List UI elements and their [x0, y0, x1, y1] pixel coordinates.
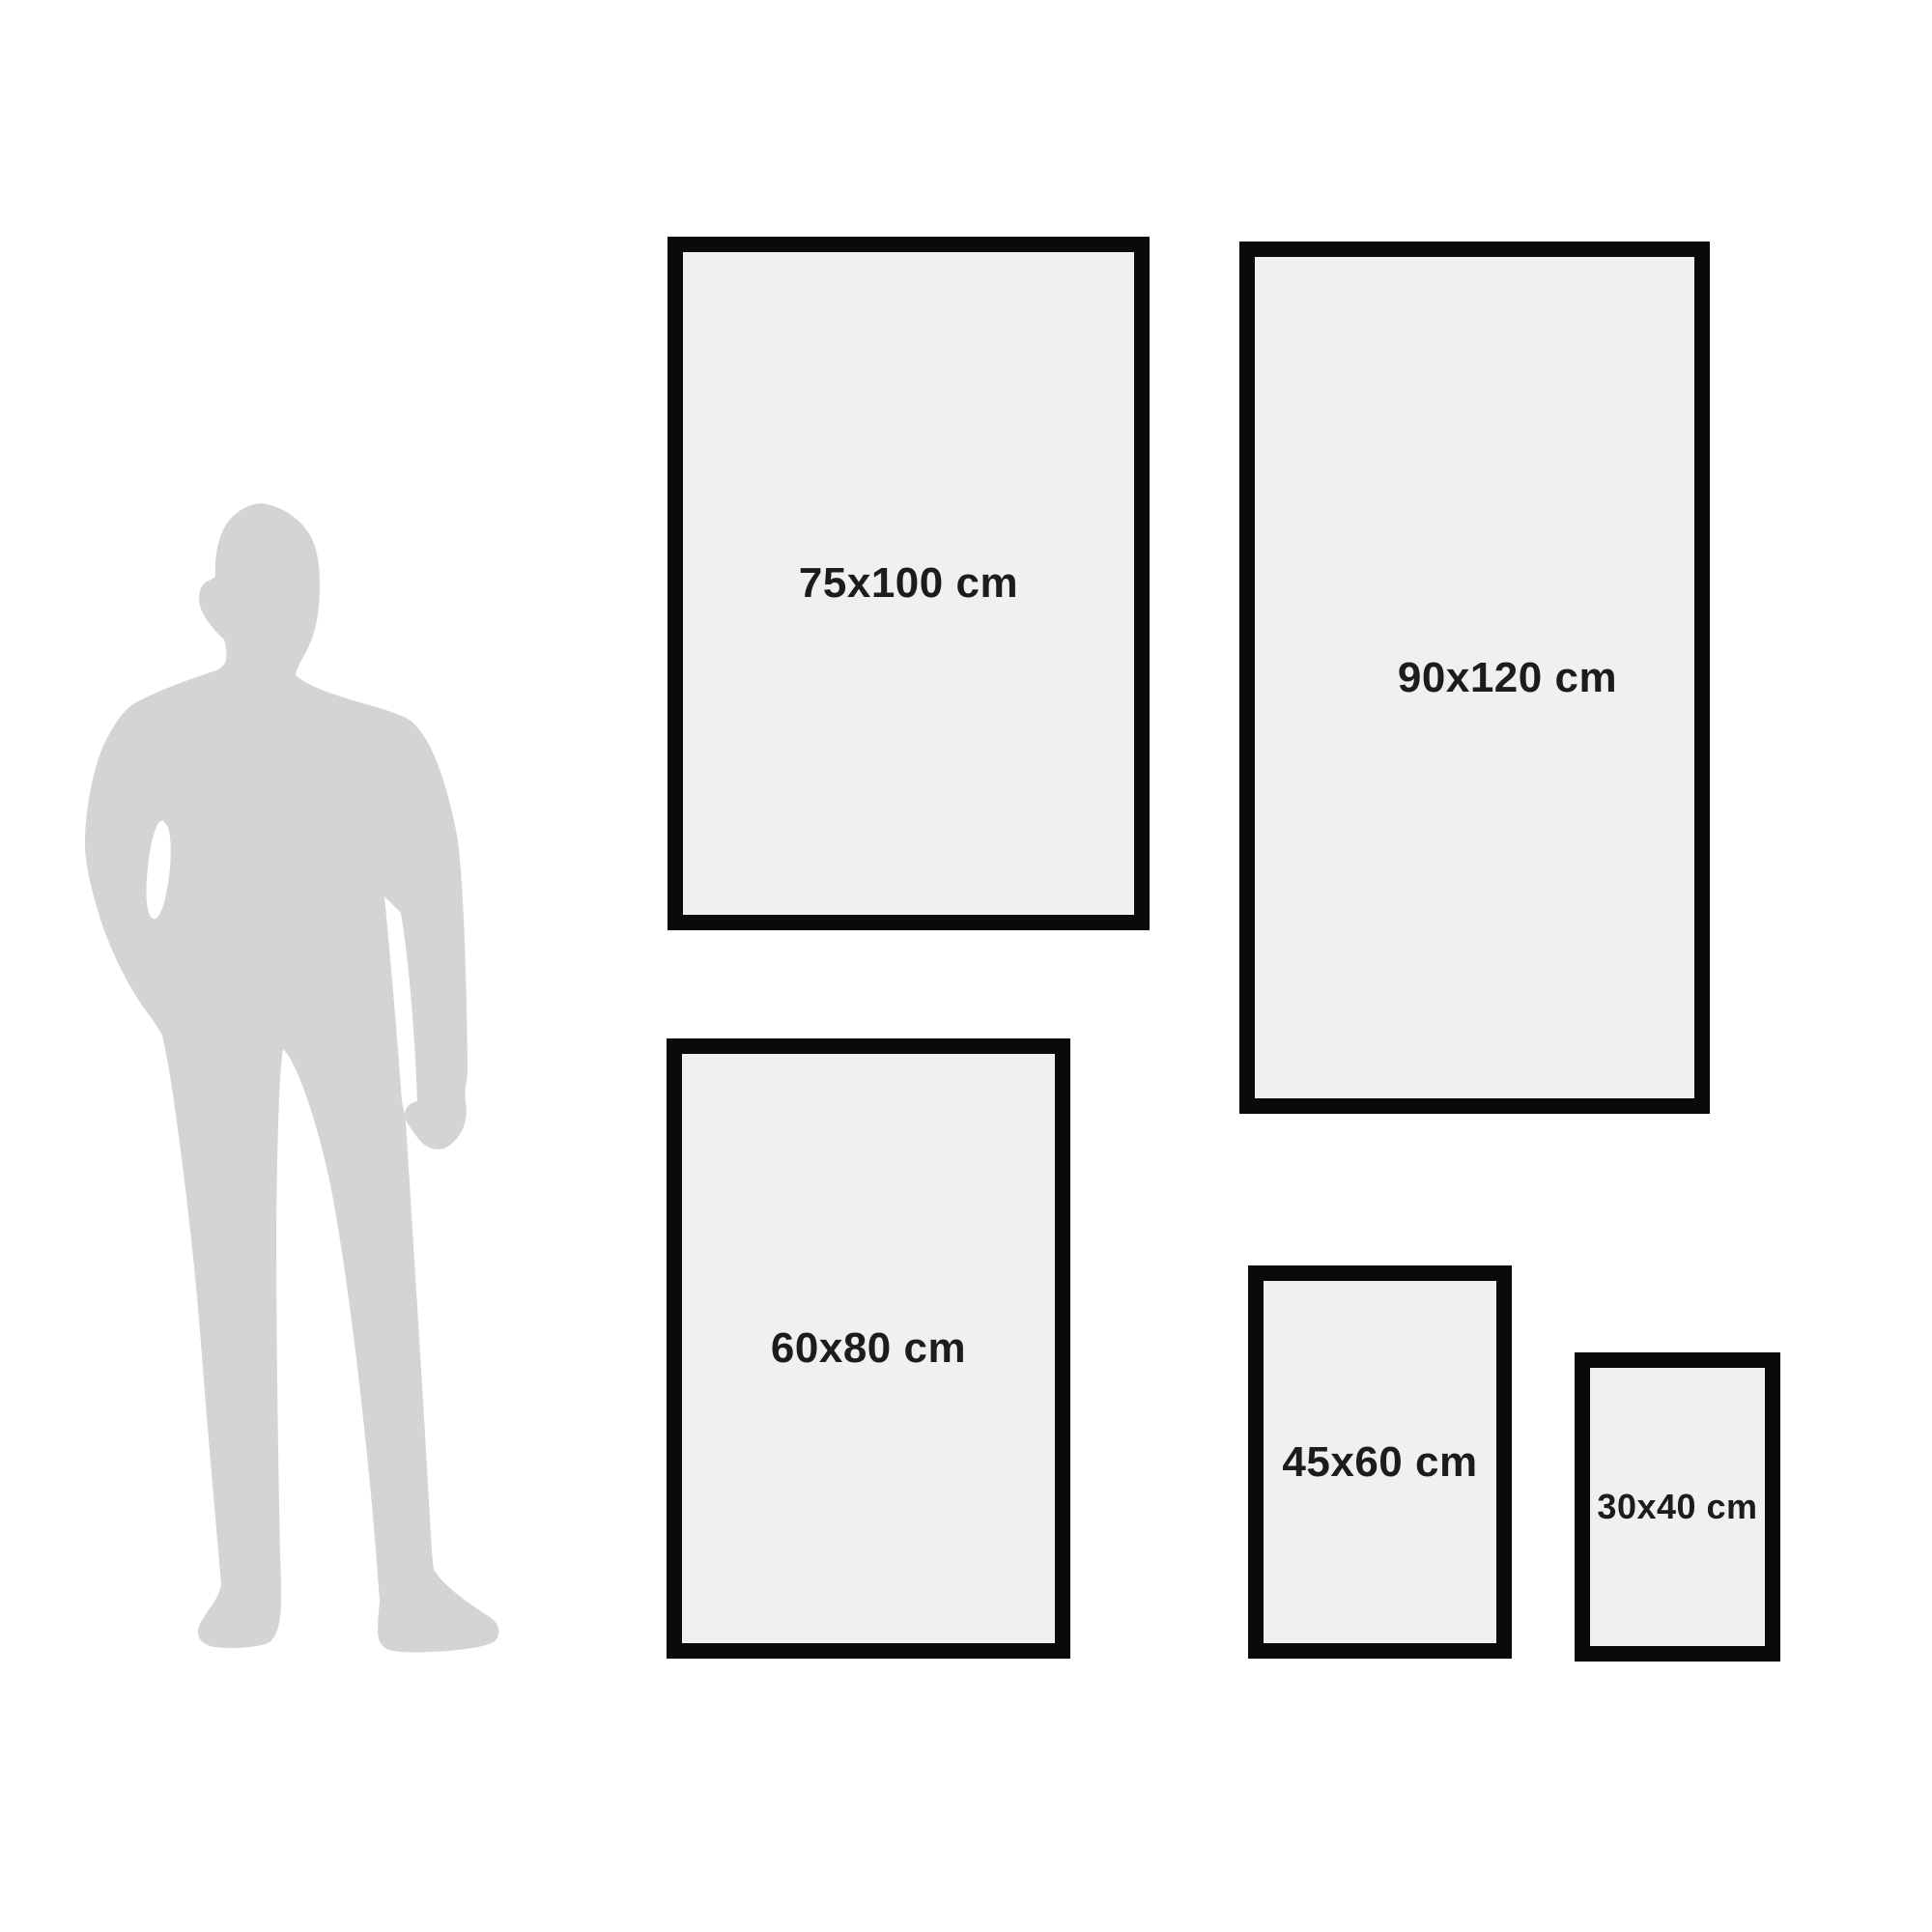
size-label-90x120: 90x120 cm — [1398, 654, 1617, 702]
size-label-60x80: 60x80 cm — [771, 1324, 966, 1373]
frame-30x40: 30x40 cm — [1575, 1352, 1780, 1662]
frame-60x80: 60x80 cm — [667, 1038, 1070, 1659]
size-label-75x100: 75x100 cm — [799, 559, 1018, 608]
frame-90x120: 90x120 cm — [1239, 241, 1710, 1114]
poster-size-comparison-diagram: 75x100 cm 90x120 cm 60x80 cm 45x60 cm 30… — [0, 0, 1932, 1932]
frame-75x100: 75x100 cm — [668, 237, 1150, 930]
frame-45x60: 45x60 cm — [1248, 1265, 1512, 1659]
man-silhouette-shape — [85, 503, 499, 1652]
size-label-45x60: 45x60 cm — [1282, 1438, 1477, 1487]
size-label-30x40: 30x40 cm — [1597, 1487, 1757, 1527]
